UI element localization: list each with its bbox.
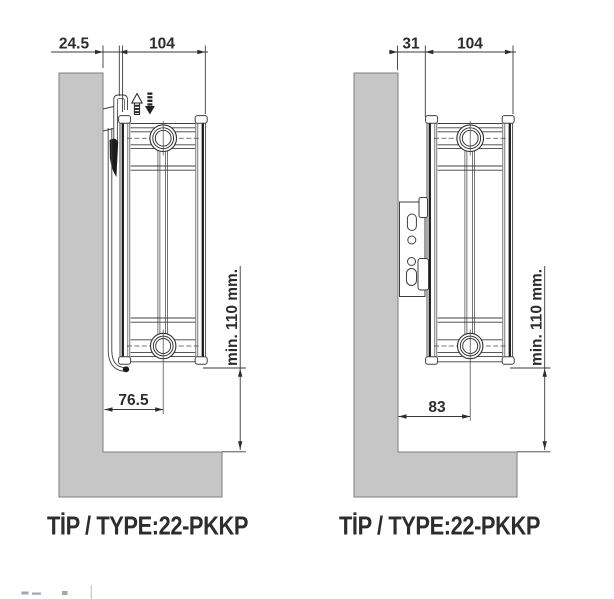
bracket-top-tab xyxy=(419,198,428,218)
dim-left-clearance: min. 110 mm. xyxy=(203,266,246,452)
radiator-mounting-diagram: 24.5 104 76.5 min. 110 mm. TİP / TYPE:22… xyxy=(0,0,614,599)
dim-label-wall-gap-right: 31 xyxy=(402,36,420,53)
dim-right-top: 31 104 xyxy=(389,36,516,118)
wall-and-floor-right xyxy=(354,73,517,497)
left-diagram: 24.5 104 76.5 min. 110 mm. TİP / TYPE:22… xyxy=(47,36,248,541)
right-diagram: 31 104 83 min. 110 mm. TİP / TYPE:22-PKK… xyxy=(339,36,551,541)
dim-right-bottom: 83 xyxy=(399,363,471,421)
type-label-right: TİP / TYPE:22-PKKP xyxy=(339,511,540,541)
dim-left-bottom: 76.5 xyxy=(105,363,164,414)
dim-label-bottom-offset-right: 83 xyxy=(428,399,446,416)
dim-label-depth-left: 104 xyxy=(149,36,175,53)
dim-label-clearance-left: min. 110 mm. xyxy=(224,269,241,366)
cropped-next-figure-artifacts xyxy=(22,585,92,599)
lift-arrow-down-icon xyxy=(145,93,155,115)
dim-label-clearance-right: min. 110 mm. xyxy=(528,269,545,366)
lift-arrows-icon xyxy=(132,93,155,115)
bracket-clip-wedge xyxy=(110,139,119,177)
mounting-plate-bracket xyxy=(400,198,429,297)
bracket-bottom-tab xyxy=(418,259,429,291)
radiator-section-left xyxy=(119,116,208,365)
dim-right-clearance: min. 110 mm. xyxy=(510,266,551,452)
dim-label-wall-gap-left: 24.5 xyxy=(59,36,90,53)
bracket-foot-clip xyxy=(123,366,129,372)
technical-drawing-canvas: 24.5 104 76.5 min. 110 mm. TİP / TYPE:22… xyxy=(0,0,614,599)
type-label-left: TİP / TYPE:22-PKKP xyxy=(47,511,248,541)
radiator-section-right xyxy=(426,116,515,365)
hook-rail-bracket xyxy=(103,95,129,372)
dim-label-bottom-offset-left: 76.5 xyxy=(118,392,149,409)
lift-arrow-up-icon xyxy=(132,94,142,115)
dim-label-depth-right: 104 xyxy=(457,36,483,53)
